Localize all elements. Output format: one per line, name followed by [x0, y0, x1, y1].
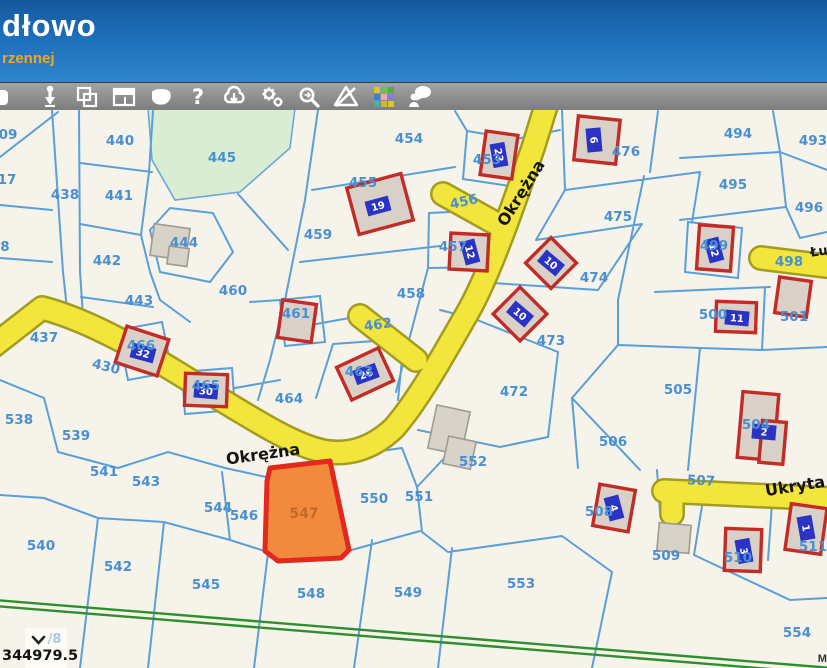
pager-count: /8 [48, 632, 62, 647]
svg-text:?: ? [192, 85, 204, 109]
cloud-download-icon[interactable] [222, 84, 248, 110]
user-feedback-icon[interactable] [407, 84, 433, 110]
pin-marker-icon[interactable] [37, 84, 63, 110]
portal-title: dłowo [2, 8, 97, 44]
settings-gears-icon[interactable] [259, 84, 285, 110]
portal-subtitle: rzennej [2, 50, 55, 67]
coordinate-readout: 344979.5 [2, 648, 78, 664]
map-canvas[interactable]: 1923612101012113230262431 09440445454453… [0, 110, 827, 668]
help-icon[interactable]: ? [185, 84, 211, 110]
polygon-balloon-icon[interactable] [148, 84, 174, 110]
gis-portal-window: dłowo rzennej ? [0, 0, 827, 668]
selected-parcel-label: 547 [289, 506, 318, 522]
warning-slash-icon[interactable] [333, 84, 359, 110]
copy-frames-icon[interactable] [74, 84, 100, 110]
portal-header: dłowo rzennej [0, 0, 827, 82]
map-toolbar: ? [0, 82, 827, 110]
legend-colors-icon[interactable] [370, 84, 396, 110]
map-attribution: Ma [818, 653, 827, 665]
zoom-search-icon[interactable] [296, 84, 322, 110]
partial-tool-icon[interactable] [0, 84, 26, 110]
layout-panels-icon[interactable] [111, 84, 137, 110]
highlight-layer [0, 110, 827, 668]
